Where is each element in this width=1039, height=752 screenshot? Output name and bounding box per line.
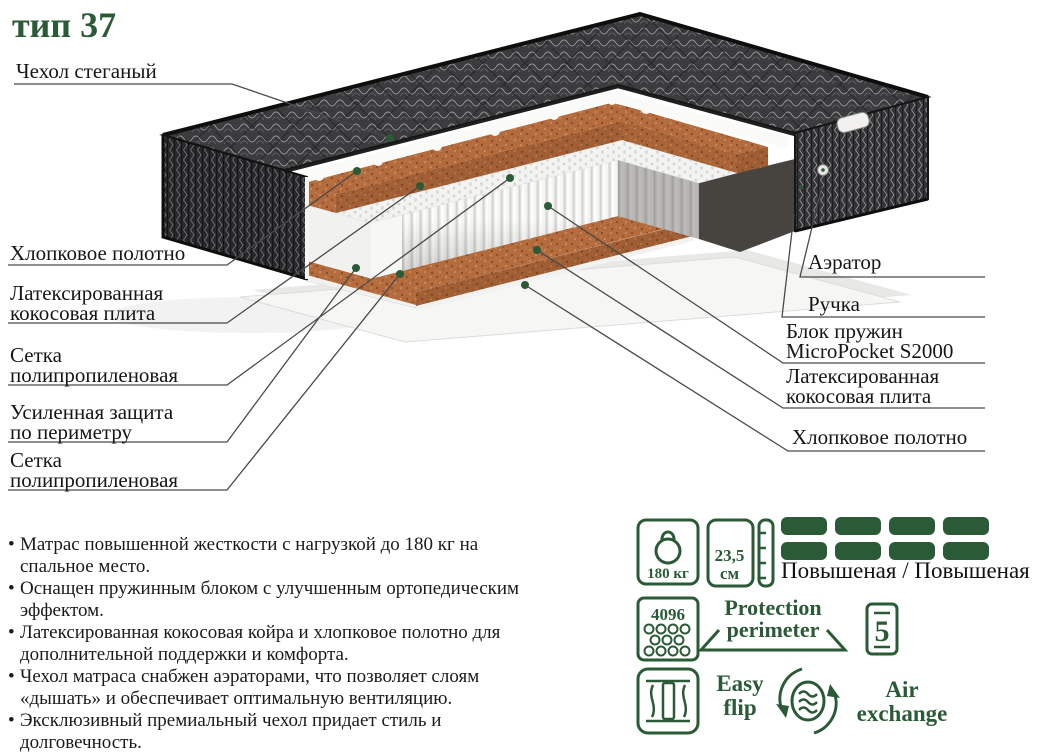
- spring-count-value: 4096: [651, 605, 685, 624]
- feature-item: Эксклюзивный премиальный чехол придает с…: [6, 710, 566, 752]
- feature-list: Матрас повышенной жесткости с нагрузкой …: [6, 534, 566, 752]
- easy-flip-icon: [636, 666, 700, 736]
- label-cotton-fabric-left: Хлопковое полотно: [10, 244, 185, 264]
- label-cotton-fabric-right: Хлопковое полотно: [792, 428, 967, 448]
- aerator: [818, 165, 829, 176]
- label-mesh-top: Сетка полипропиленовая: [10, 346, 178, 385]
- firmness-bars-icon: [781, 517, 993, 563]
- label-quilted-cover: Чехол стеганый: [16, 62, 157, 82]
- firmness-label: Повышеная / Повышеная: [781, 558, 1030, 584]
- feature-item: Оснащен пружинным блоком с улучшенным ор…: [6, 578, 566, 622]
- label-aerator: Аэратор: [808, 253, 881, 273]
- label-coir-plate-left: Латексированная кокосовая плита: [10, 284, 163, 323]
- kettlebell-icon: [656, 532, 680, 563]
- page-title: тип 37: [12, 4, 116, 46]
- protection-perimeter-icon: [693, 618, 853, 654]
- max-load-value: 180 кг: [647, 566, 689, 582]
- label-handle: Ручка: [808, 295, 860, 315]
- easy-flip-label: Easy flip: [700, 672, 780, 720]
- label-mesh-bottom: Сетка полипропиленовая: [10, 451, 178, 490]
- mattress-infographic: тип 37 Чехол стеганый Хлопковое полотно …: [0, 0, 1039, 752]
- ruler-icon: [759, 520, 773, 586]
- warranty-value: 5: [875, 615, 890, 648]
- air-exchange-label: Air exchange: [842, 678, 962, 726]
- feature-item: Чехол матраса снабжен аэраторами, что по…: [6, 666, 566, 710]
- spring-count-icon: 4096: [636, 596, 700, 662]
- feature-item: Матрас повышенной жесткости с нагрузкой …: [6, 534, 566, 578]
- warranty-icon: 5: [864, 602, 900, 656]
- label-coir-plate-right: Латексированная кокосовая плита: [786, 367, 939, 406]
- feature-item: Латексированная кокосовая койра и хлопко…: [6, 622, 566, 666]
- air-exchange-icon: [772, 662, 848, 740]
- label-spring-block: Блок пружин MicroPocket S2000: [786, 322, 953, 361]
- height-value: 23,5 см: [706, 547, 753, 583]
- label-perimeter-protection: Усиленная защита по периметру: [10, 403, 173, 442]
- max-load-icon: 180 кг: [636, 518, 700, 586]
